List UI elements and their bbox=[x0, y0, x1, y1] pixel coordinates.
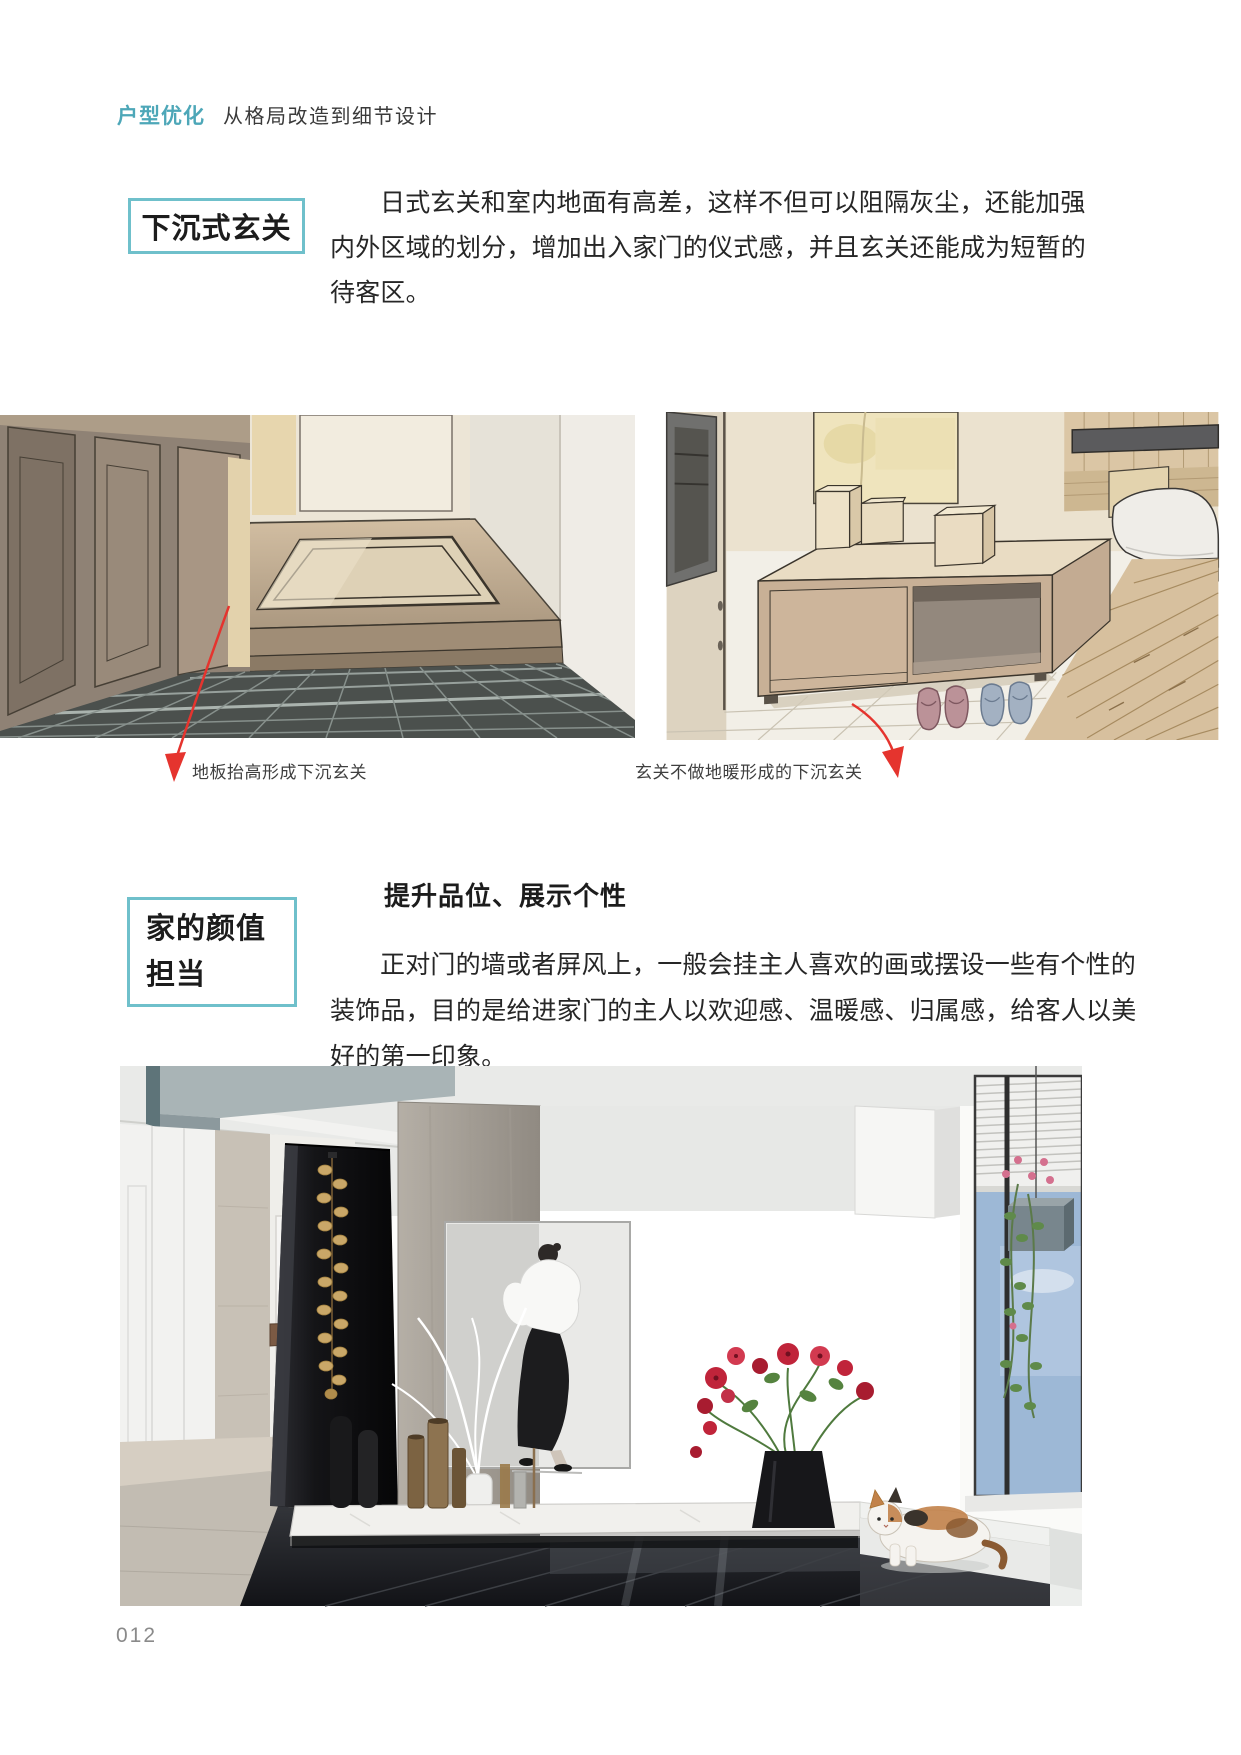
section-title-line: 家的颜值 bbox=[146, 906, 266, 952]
book-subtitle: 从格局改造到细节设计 bbox=[223, 100, 438, 129]
section-title-line: 担当 bbox=[146, 952, 206, 998]
framed-art-photo bbox=[445, 1222, 630, 1473]
red-curved-arrow-down-icon bbox=[838, 698, 918, 798]
wall-corner bbox=[855, 1106, 935, 1218]
paragraph-line: 待客区。 bbox=[330, 271, 1086, 316]
section-paragraph-home-face: 正对门的墙或者屏风上，一般会挂主人喜欢的画或摆设一些有个性的 装饰品，目的是给进… bbox=[330, 942, 1136, 1080]
page-header: 户型优化 从格局改造到细节设计 bbox=[117, 100, 438, 130]
window bbox=[965, 1076, 1082, 1512]
lit-panel bbox=[252, 415, 296, 515]
back-doorway bbox=[300, 415, 452, 511]
section-title-box-home-face: 家的颜值 担当 bbox=[127, 897, 297, 1007]
paragraph-line: 内外区域的划分，增加出入家门的仪式感，并且玄关还能成为短暂的 bbox=[330, 226, 1086, 271]
sub-heading: 提升品位、展示个性 bbox=[384, 876, 627, 913]
figure-caption: 地板抬高形成下沉玄关 bbox=[192, 758, 367, 783]
figure-caption: 玄关不做地暖形成的下沉玄关 bbox=[635, 758, 863, 783]
section-title: 下沉式玄关 bbox=[141, 205, 291, 247]
paragraph-line: 正对门的墙或者屏风上，一般会挂主人喜欢的画或摆设一些有个性的 bbox=[330, 942, 1136, 988]
figure-raised-floor-genkan bbox=[0, 415, 635, 738]
book-page: { "palette":{ "accent":"#6fc0cb", "accen… bbox=[0, 0, 1241, 1755]
figure-entry-hall-display-wall bbox=[120, 1065, 1082, 1607]
paragraph-line: 日式玄关和室内地面有高差，这样不但可以阻隔灰尘，还能加强 bbox=[330, 181, 1086, 226]
page-number: 012 bbox=[116, 1624, 157, 1648]
figure-entry-bench-no-floor-heating bbox=[665, 412, 1220, 740]
dark-rail bbox=[1072, 425, 1218, 453]
paragraph-line: 装饰品，目的是给进家门的主人以欢迎感、温暖感、归属感，给客人以美 bbox=[330, 988, 1136, 1034]
section-paragraph-sunken-entry: 日式玄关和室内地面有高差，这样不但可以阻隔灰尘，还能加强 内外区域的划分，增加出… bbox=[330, 181, 1086, 316]
section-title-box-sunken-entry: 下沉式玄关 bbox=[128, 198, 305, 254]
series-title: 户型优化 bbox=[117, 100, 205, 130]
